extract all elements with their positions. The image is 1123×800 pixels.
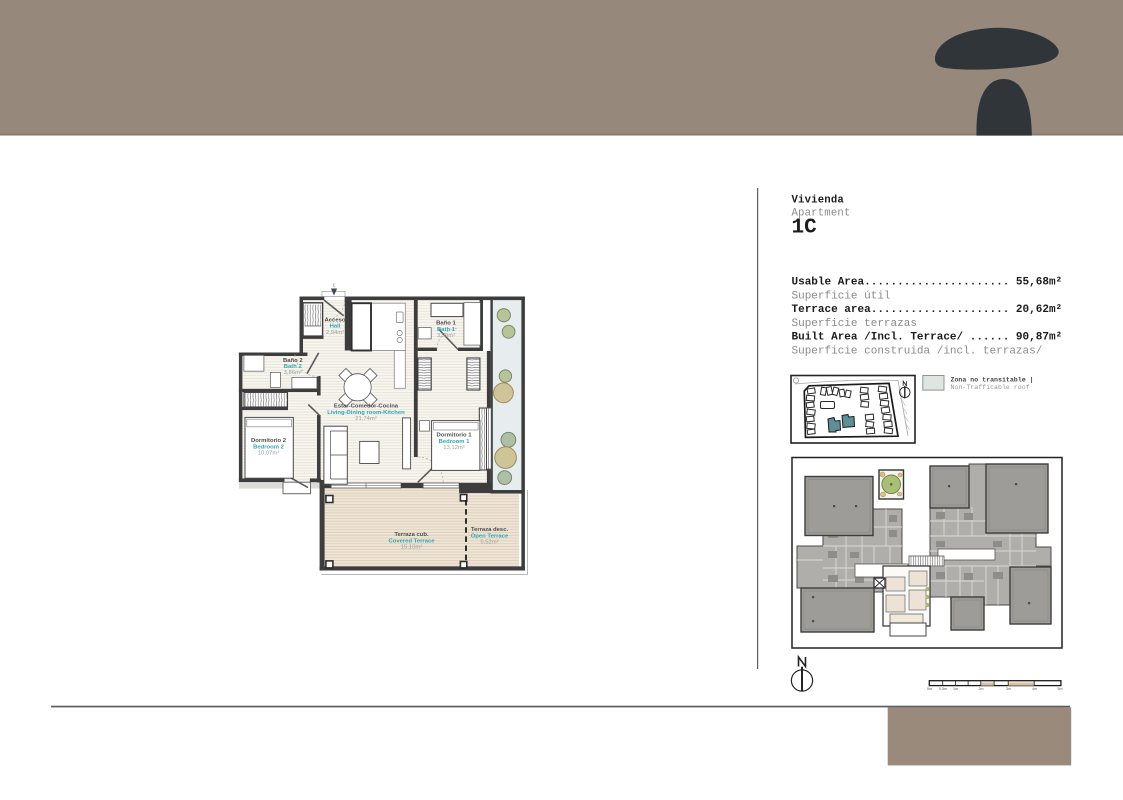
- svg-text:Bedroom 2: Bedroom 2: [253, 444, 284, 450]
- svg-text:Estar-Comedor-Cocina: Estar-Comedor-Cocina: [334, 404, 399, 410]
- svg-text:Zona no transitable |: Zona no transitable |: [951, 377, 1034, 384]
- svg-text:3m: 3m: [1006, 687, 1011, 691]
- svg-text:3,86m²: 3,86m²: [284, 370, 302, 376]
- svg-text:Usable Area...................: Usable Area...................... 55,68m…: [792, 277, 1063, 289]
- svg-text:Bath 1: Bath 1: [437, 327, 456, 333]
- svg-text:Baño 1: Baño 1: [436, 321, 456, 327]
- svg-text:4m: 4m: [1032, 687, 1037, 691]
- svg-text:2,94m²: 2,94m²: [326, 330, 344, 336]
- svg-text:Non-Trafficable roof: Non-Trafficable roof: [951, 384, 1030, 391]
- svg-text:Open Terrace: Open Terrace: [471, 533, 509, 539]
- svg-text:15,10m²: 15,10m²: [401, 545, 423, 551]
- svg-text:Baño 2: Baño 2: [283, 358, 303, 364]
- svg-text:Covered Terrace: Covered Terrace: [388, 538, 435, 544]
- svg-text:Terrace area..................: Terrace area..................... 20,62m…: [792, 304, 1063, 316]
- svg-text:10,07m²: 10,07m²: [258, 451, 280, 457]
- svg-text:Superficie útil: Superficie útil: [792, 290, 891, 302]
- svg-text:2m: 2m: [979, 687, 984, 691]
- svg-text:Superficie terrazas: Superficie terrazas: [792, 318, 917, 330]
- svg-text:Terraza desc.: Terraza desc.: [471, 527, 509, 533]
- svg-text:1m: 1m: [953, 687, 958, 691]
- svg-text:Acceso: Acceso: [325, 317, 346, 323]
- svg-text:Living-Dining room-Kitchen: Living-Dining room-Kitchen: [327, 410, 405, 416]
- svg-text:0m: 0m: [927, 687, 932, 691]
- svg-text:5m: 5m: [1058, 687, 1063, 691]
- svg-text:21,74m²: 21,74m²: [355, 416, 377, 422]
- svg-text:13,12m²: 13,12m²: [443, 445, 465, 451]
- svg-text:3,99m²: 3,99m²: [437, 333, 455, 339]
- svg-text:Superficie construida /incl. t: Superficie construida /incl. terrazas/: [792, 346, 1043, 358]
- svg-text:0.5m: 0.5m: [939, 687, 947, 691]
- svg-text:Bath 2: Bath 2: [284, 364, 303, 370]
- svg-text:Terraza cub.: Terraza cub.: [394, 532, 429, 538]
- svg-text:Dormitorio 2: Dormitorio 2: [251, 438, 287, 444]
- svg-text:5,52m²: 5,52m²: [480, 540, 498, 546]
- svg-text:1C: 1C: [792, 217, 818, 240]
- svg-text:Dormitorio 1: Dormitorio 1: [436, 433, 472, 439]
- svg-text:Built Area /Incl. Terrace/ ...: Built Area /Incl. Terrace/ ...... 90,87m…: [792, 332, 1063, 344]
- svg-text:Bedroom 1: Bedroom 1: [439, 439, 470, 445]
- svg-text:Hall: Hall: [330, 324, 341, 330]
- svg-text:Vivienda: Vivienda: [792, 195, 845, 207]
